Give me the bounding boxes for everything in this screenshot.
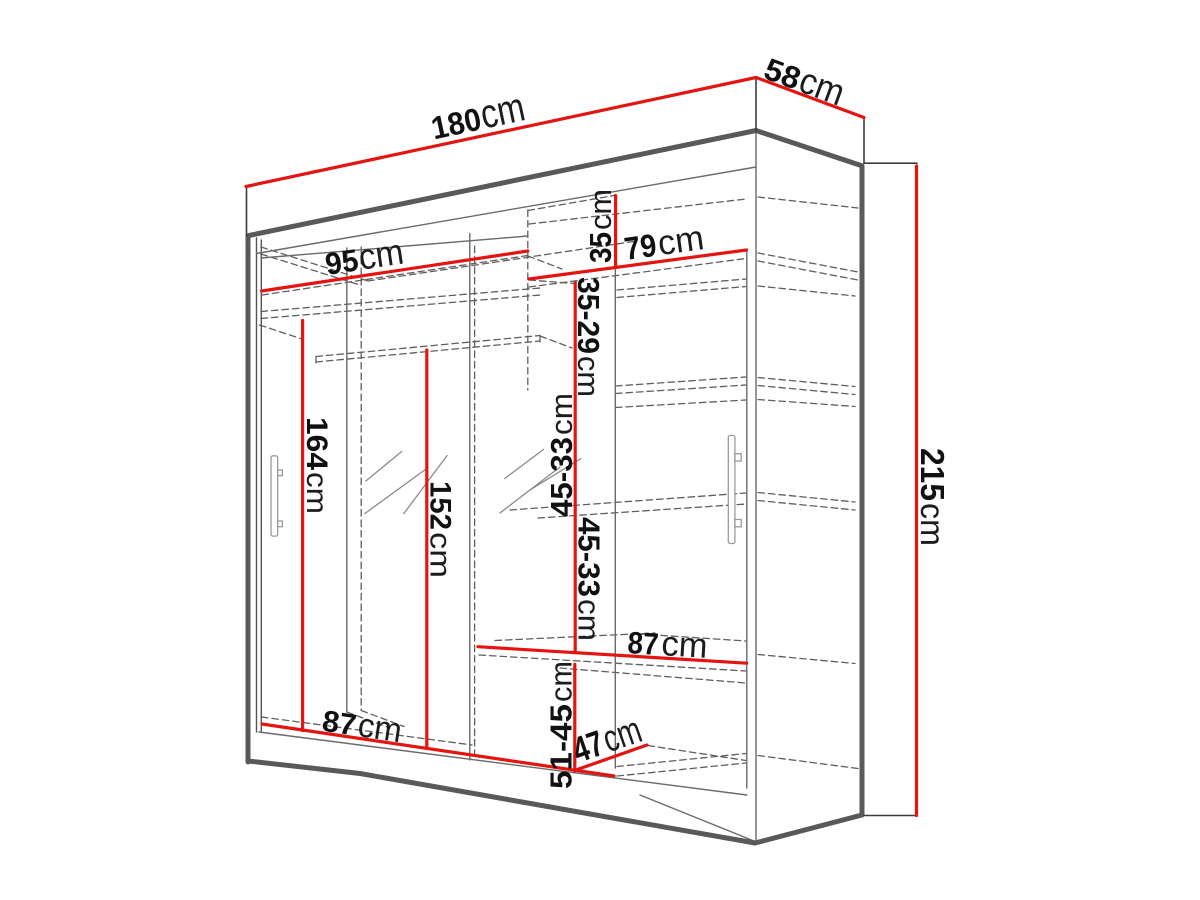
svg-text:45-33cm: 45-33cm [572, 517, 607, 641]
svg-text:45-33cm: 45-33cm [544, 393, 579, 517]
svg-text:35cm: 35cm [583, 189, 618, 263]
svg-text:87cm: 87cm [627, 622, 709, 666]
svg-text:152cm: 152cm [424, 481, 457, 578]
svg-text:215cm: 215cm [914, 448, 951, 546]
svg-text:35-29cm: 35-29cm [571, 277, 606, 397]
svg-text:164cm: 164cm [300, 417, 333, 514]
svg-text:51-45cm: 51-45cm [544, 661, 579, 789]
